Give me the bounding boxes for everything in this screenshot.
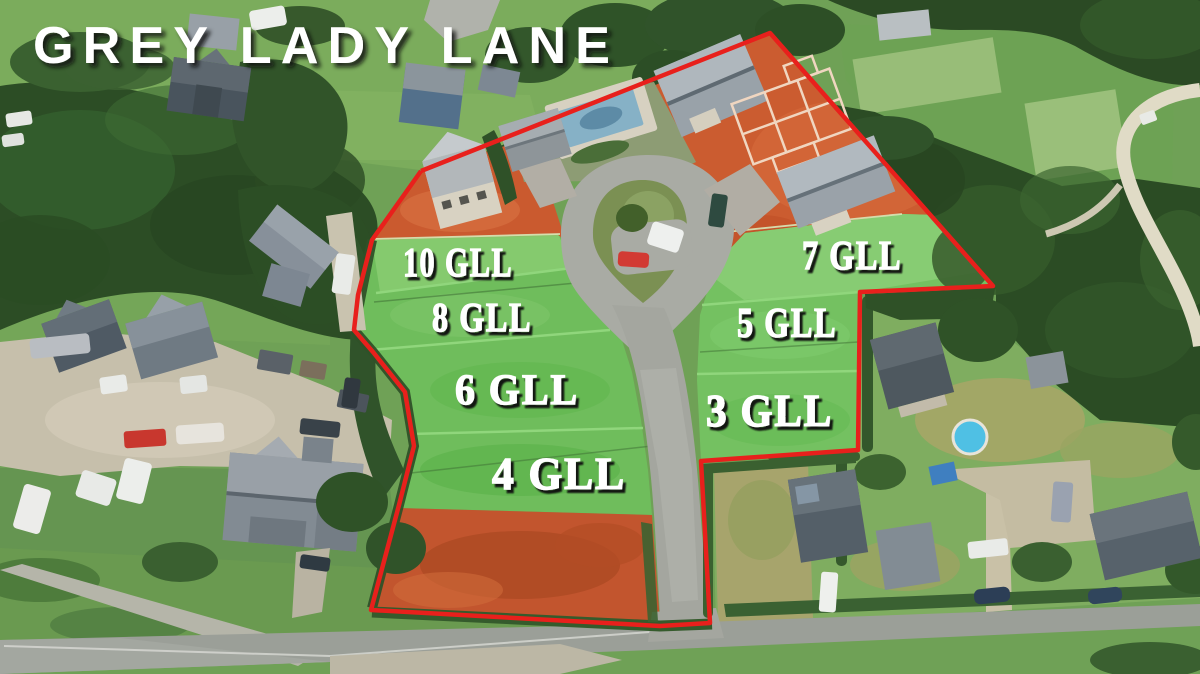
svg-text:6 GLL: 6 GLL <box>455 367 579 414</box>
svg-text:5 GLL: 5 GLL <box>737 301 837 347</box>
svg-text:8 GLL: 8 GLL <box>432 294 532 340</box>
svg-text:GREY LADY LANE: GREY LADY LANE <box>33 17 619 75</box>
svg-text:7 GLL: 7 GLL <box>802 232 902 278</box>
svg-text:10 GLL: 10 GLL <box>403 239 513 285</box>
svg-text:3 GLL: 3 GLL <box>706 386 833 436</box>
svg-text:4 GLL: 4 GLL <box>492 449 626 499</box>
